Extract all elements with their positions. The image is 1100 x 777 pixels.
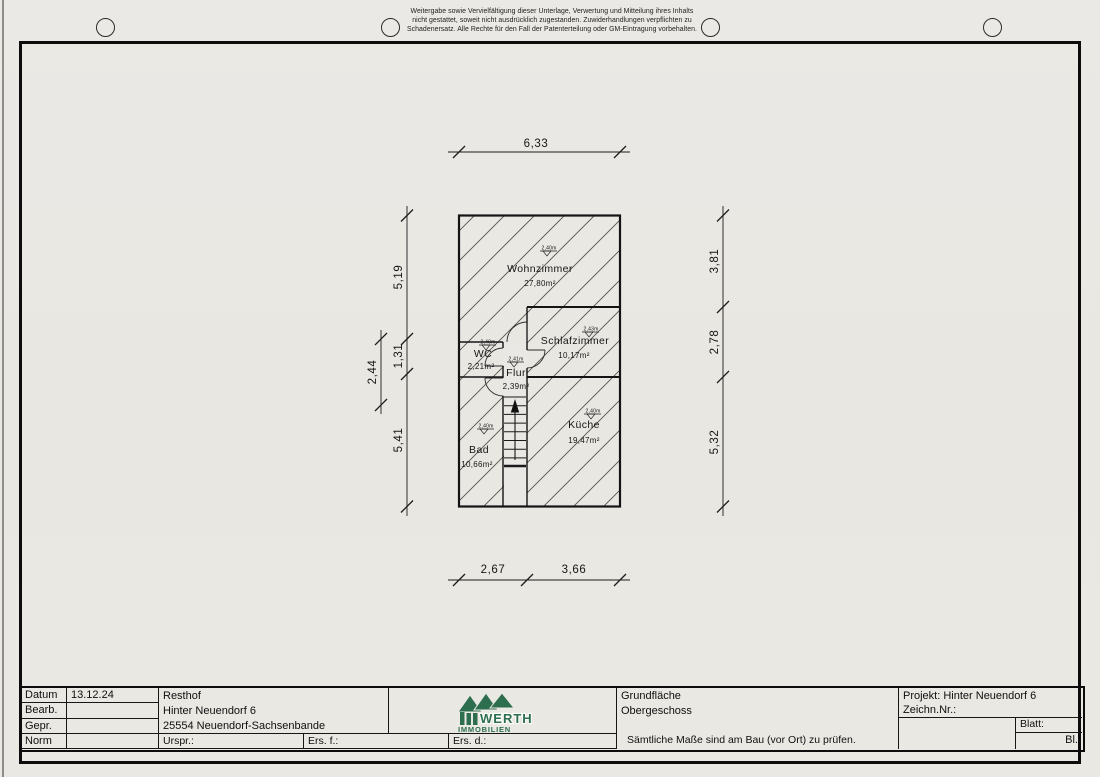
room-bad-name: Bad [469, 444, 489, 456]
dim-right-mid: 2,78 [709, 330, 721, 355]
norm-label: Norm [21, 734, 67, 749]
ers-d-cell: Ers. d.: [449, 734, 617, 749]
room-schlafzimmer-area: 10,17m² [558, 351, 589, 360]
logo-roof-icon: WERTH IMMOBILIEN [455, 689, 547, 733]
height-value: 2,40m [479, 424, 494, 430]
blatt-label: Blatt: [1016, 718, 1082, 733]
gepr-label: Gepr. [21, 719, 67, 734]
dim-left-mid: 1,31 [393, 344, 405, 369]
room-wc-name: WC [474, 348, 492, 360]
dim-right-top: 3,81 [709, 249, 721, 274]
address-block: Resthof Hinter Neuendorf 6 25554 Neuendo… [159, 688, 389, 734]
title-block: Datum Bearb. Gepr. Norm 13.12.24 Resthof… [19, 686, 1085, 752]
project-cell: Projekt: Hinter Neuendorf 6 Zeichn.Nr.: … [899, 688, 1082, 749]
bl-label: Bl. [1016, 733, 1082, 749]
bearb-label: Bearb. [21, 703, 67, 719]
zeichn-line: Zeichn.Nr.: [903, 703, 1078, 717]
drawing-sheet: Weitergabe sowie Vervielfältigung dieser… [0, 0, 1100, 777]
projekt-line: Projekt: Hinter Neuendorf 6 [903, 689, 1078, 703]
measurement-note: Sämtliche Maße sind am Bau (vor Ort) zu … [627, 734, 856, 747]
height-value: 2,43m [584, 327, 599, 333]
room-flur-name: Flur [506, 367, 526, 379]
dim-right-bottom: 5,32 [709, 430, 721, 455]
dim-left-top: 5,19 [393, 265, 405, 290]
datum-value: 13.12.24 [67, 688, 159, 703]
urspr-cell: Urspr.: [159, 734, 304, 749]
room-wohnzimmer-area: 27,80m² [524, 279, 555, 288]
dim-bottom-right: 3,66 [562, 564, 587, 576]
project-empty-cell [899, 718, 1016, 749]
address-line-2: Hinter Neuendorf 6 [163, 704, 384, 719]
project-info: Projekt: Hinter Neuendorf 6 Zeichn.Nr.: [899, 688, 1082, 718]
bearb-value [67, 703, 159, 719]
content-line-2: Obergeschoss [621, 704, 894, 719]
room-flur-area: 2,39m² [503, 382, 530, 391]
logo-cell: WERTH IMMOBILIEN [389, 688, 617, 734]
gepr-value [67, 719, 159, 734]
dim-left-bottom: 5,41 [393, 428, 405, 453]
height-value: 2,40m [586, 409, 601, 415]
room-kueche-area: 19,47m² [568, 436, 599, 445]
werth-logo: WERTH IMMOBILIEN [455, 689, 547, 732]
height-value: 2,40m [542, 246, 557, 252]
content-line-1: Grundfläche [621, 689, 894, 704]
room-wohnzimmer-name: Wohnzimmer [507, 263, 573, 275]
room-bad-area: 10,66m² [461, 460, 492, 469]
content-cell: Grundfläche Obergeschoss Sämtliche Maße … [617, 688, 899, 749]
room-schlafzimmer-name: Schlafzimmer [541, 335, 609, 347]
height-value: 2,40m [481, 340, 496, 346]
room-wc-area: 2,21m² [468, 362, 495, 371]
logo-brand-text: WERTH [480, 711, 533, 726]
height-value: 2,41m [509, 357, 524, 363]
dim-left-outer: 2,44 [367, 360, 379, 385]
floor-plan-drawing: 6,33 2,67 3,66 5,19 1,31 5,41 2,44 3,81 … [0, 0, 1100, 777]
norm-value [67, 734, 159, 749]
dim-bottom-left: 2,67 [481, 564, 506, 576]
datum-label: Datum [21, 688, 67, 703]
ers-f-cell: Ers. f.: [304, 734, 449, 749]
address-line-3: 25554 Neuendorf-Sachsenbande [163, 719, 384, 734]
address-line-1: Resthof [163, 689, 384, 704]
dim-top: 6,33 [524, 138, 549, 150]
room-kueche-name: Küche [568, 419, 600, 431]
logo-sub-text: IMMOBILIEN [458, 725, 511, 733]
